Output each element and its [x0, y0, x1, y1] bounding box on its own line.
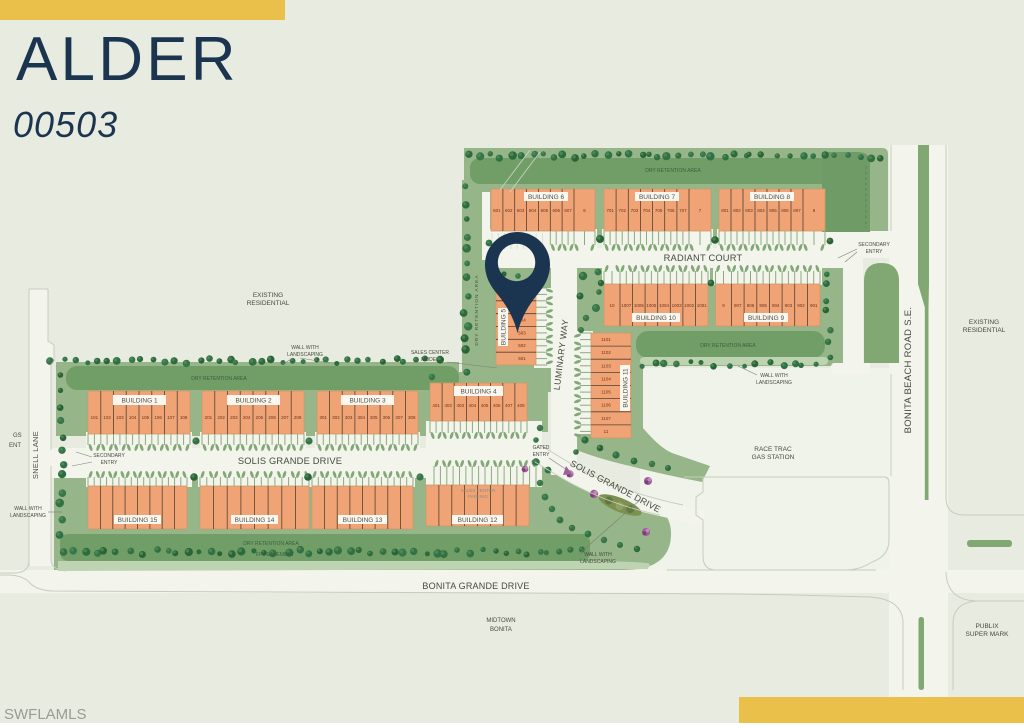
svg-text:BONITA: BONITA [490, 627, 512, 633]
svg-text:RACE TRAC: RACE TRAC [754, 446, 792, 453]
svg-text:DRY RETENTION AREA: DRY RETENTION AREA [191, 376, 247, 382]
svg-text:WALL WITH: WALL WITH [584, 552, 612, 558]
svg-text:106: 106 [154, 415, 162, 420]
svg-text:LANDSCAPING: LANDSCAPING [287, 352, 323, 358]
svg-text:LANDSCAPING: LANDSCAPING [756, 380, 792, 386]
svg-text:503: 503 [518, 330, 526, 335]
svg-text:403: 403 [457, 403, 465, 408]
svg-text:RADIANT COURT: RADIANT COURT [664, 253, 743, 263]
svg-text:706: 706 [667, 208, 675, 213]
svg-text:MIDTOWN: MIDTOWN [486, 618, 515, 624]
svg-text:LANDSCAPING: LANDSCAPING [10, 513, 46, 519]
svg-text:RESIDENTIAL: RESIDENTIAL [247, 300, 290, 307]
svg-text:905: 905 [759, 303, 767, 308]
svg-text:103: 103 [116, 415, 124, 420]
svg-text:BUILDING 10: BUILDING 10 [636, 315, 676, 322]
svg-text:BUILDING 1: BUILDING 1 [121, 397, 158, 404]
svg-text:108: 108 [180, 415, 188, 420]
svg-text:WALL WITH: WALL WITH [14, 506, 42, 512]
svg-text:204: 204 [243, 415, 251, 420]
svg-text:206: 206 [268, 415, 276, 420]
svg-text:102: 102 [103, 415, 111, 420]
svg-text:BUILDING 11: BUILDING 11 [622, 368, 629, 408]
svg-text:1105: 1105 [601, 390, 611, 395]
svg-text:301: 301 [320, 415, 328, 420]
svg-text:307: 307 [395, 415, 403, 420]
svg-text:SECONDARY: SECONDARY [93, 453, 125, 459]
svg-text:802: 802 [733, 208, 741, 213]
svg-text:BUILDING 12: BUILDING 12 [458, 517, 498, 524]
svg-text:702: 702 [618, 208, 626, 213]
svg-text:1101: 1101 [601, 337, 611, 342]
svg-text:101: 101 [91, 415, 99, 420]
svg-text:00503: 00503 [13, 104, 118, 145]
svg-text:1007: 1007 [621, 303, 632, 308]
svg-text:302: 302 [332, 415, 340, 420]
svg-text:606: 606 [552, 208, 560, 213]
svg-text:GS: GS [13, 433, 22, 439]
svg-text:WALL WITH: WALL WITH [760, 373, 788, 379]
svg-text:705: 705 [655, 208, 663, 213]
svg-text:RESIDENTIAL: RESIDENTIAL [963, 327, 1006, 334]
svg-text:FPL EASEMENT: FPL EASEMENT [256, 552, 294, 558]
svg-text:1004: 1004 [659, 303, 670, 308]
svg-text:401: 401 [432, 403, 440, 408]
svg-text:GATED: GATED [533, 445, 550, 451]
svg-text:1104: 1104 [601, 376, 611, 381]
svg-text:BUILDING 2: BUILDING 2 [235, 397, 272, 404]
svg-text:205: 205 [256, 415, 264, 420]
svg-text:603: 603 [517, 208, 525, 213]
svg-text:BUILDING 7: BUILDING 7 [639, 194, 676, 201]
svg-text:DRY RETENTION AREA: DRY RETENTION AREA [243, 541, 299, 547]
svg-text:BONITA BEACH ROAD S.E.: BONITA BEACH ROAD S.E. [903, 307, 914, 434]
svg-text:306: 306 [383, 415, 391, 420]
svg-text:207: 207 [281, 415, 289, 420]
svg-text:DRY RETENTION AREA: DRY RETENTION AREA [700, 343, 756, 349]
svg-text:BUILDING 15: BUILDING 15 [118, 517, 158, 524]
svg-text:404: 404 [469, 403, 477, 408]
svg-text:701: 701 [606, 208, 614, 213]
svg-text:DRY RETENTION AREA: DRY RETENTION AREA [474, 274, 480, 345]
svg-text:407: 407 [505, 403, 513, 408]
svg-text:SUPER MARK: SUPER MARK [966, 631, 1010, 638]
svg-text:203: 203 [230, 415, 238, 420]
svg-text:305: 305 [370, 415, 378, 420]
svg-text:10: 10 [609, 303, 615, 308]
svg-text:ENT: ENT [9, 443, 21, 449]
svg-text:BUILDING 3: BUILDING 3 [349, 397, 386, 404]
svg-text:EXISTING: EXISTING [969, 319, 999, 326]
svg-text:902: 902 [797, 303, 805, 308]
svg-text:704: 704 [643, 208, 651, 213]
svg-text:107: 107 [167, 415, 175, 420]
svg-text:SNELL LANE: SNELL LANE [31, 431, 40, 479]
svg-text:1103: 1103 [601, 363, 611, 368]
svg-text:308: 308 [408, 415, 416, 420]
svg-text:ENTRY: ENTRY [866, 249, 884, 255]
svg-text:602: 602 [505, 208, 513, 213]
svg-text:1003: 1003 [672, 303, 683, 308]
svg-text:607: 607 [564, 208, 572, 213]
svg-text:901: 901 [810, 303, 818, 308]
svg-text:GAS STATION: GAS STATION [752, 454, 795, 461]
svg-text:SOLIS GRANDE DRIVE: SOLIS GRANDE DRIVE [238, 456, 342, 466]
svg-text:805: 805 [769, 208, 777, 213]
svg-text:807: 807 [793, 208, 801, 213]
svg-text:1005: 1005 [646, 303, 657, 308]
svg-text:703: 703 [631, 208, 639, 213]
svg-text:1002: 1002 [684, 303, 695, 308]
svg-text:SWFLAMLS: SWFLAMLS [4, 706, 87, 723]
svg-text:LANDSCAPING: LANDSCAPING [580, 559, 616, 565]
svg-text:803: 803 [745, 208, 753, 213]
svg-text:EXISTING: EXISTING [253, 292, 283, 299]
svg-text:BONITA GRANDE DRIVE: BONITA GRANDE DRIVE [422, 581, 529, 591]
svg-text:WALL WITH: WALL WITH [291, 345, 319, 351]
svg-text:ENTRY: ENTRY [101, 460, 119, 466]
svg-text:402: 402 [444, 403, 452, 408]
svg-text:201: 201 [205, 415, 213, 420]
svg-text:11: 11 [604, 429, 609, 434]
svg-text:903: 903 [785, 303, 793, 308]
svg-text:BUILDING 6: BUILDING 6 [528, 194, 565, 201]
svg-text:202: 202 [217, 415, 225, 420]
svg-text:1107: 1107 [601, 416, 611, 421]
svg-text:1001: 1001 [697, 303, 708, 308]
svg-text:1102: 1102 [601, 350, 611, 355]
svg-text:SALES CENTER: SALES CENTER [411, 350, 449, 356]
svg-text:SALES CENTER: SALES CENTER [461, 488, 496, 493]
svg-text:BUILDING 5: BUILDING 5 [500, 309, 507, 346]
svg-text:804: 804 [757, 208, 765, 213]
svg-text:BUILDING 9: BUILDING 9 [748, 315, 785, 322]
svg-text:1106: 1106 [601, 403, 611, 408]
svg-text:ENTRY: ENTRY [533, 452, 551, 458]
svg-text:405: 405 [481, 403, 489, 408]
svg-text:406: 406 [493, 403, 501, 408]
svg-text:601: 601 [493, 208, 501, 213]
svg-text:801: 801 [721, 208, 729, 213]
svg-text:BUILDING 13: BUILDING 13 [343, 517, 383, 524]
svg-text:707: 707 [679, 208, 687, 213]
svg-text:501: 501 [518, 356, 526, 361]
svg-text:SECONDARY: SECONDARY [858, 242, 890, 248]
svg-text:BUILDING 14: BUILDING 14 [235, 517, 275, 524]
svg-text:907: 907 [734, 303, 742, 308]
svg-text:604: 604 [529, 208, 537, 213]
svg-text:ALDER: ALDER [16, 25, 239, 94]
svg-text:605: 605 [541, 208, 549, 213]
svg-text:408: 408 [517, 403, 525, 408]
svg-text:BUILDING 4: BUILDING 4 [460, 388, 497, 395]
svg-text:304: 304 [357, 415, 365, 420]
svg-text:PARKING: PARKING [468, 494, 488, 499]
svg-text:105: 105 [142, 415, 150, 420]
svg-text:PUBLIX: PUBLIX [975, 623, 999, 630]
svg-text:BUILDING 8: BUILDING 8 [754, 194, 791, 201]
svg-text:MODEL: MODEL [421, 357, 439, 363]
svg-text:104: 104 [129, 415, 137, 420]
svg-text:DRY RETENTION AREA: DRY RETENTION AREA [645, 168, 701, 174]
svg-text:303: 303 [345, 415, 353, 420]
svg-text:904: 904 [772, 303, 780, 308]
svg-text:806: 806 [781, 208, 789, 213]
svg-text:1006: 1006 [634, 303, 645, 308]
svg-text:208: 208 [294, 415, 302, 420]
svg-text:502: 502 [518, 343, 526, 348]
svg-text:906: 906 [747, 303, 755, 308]
